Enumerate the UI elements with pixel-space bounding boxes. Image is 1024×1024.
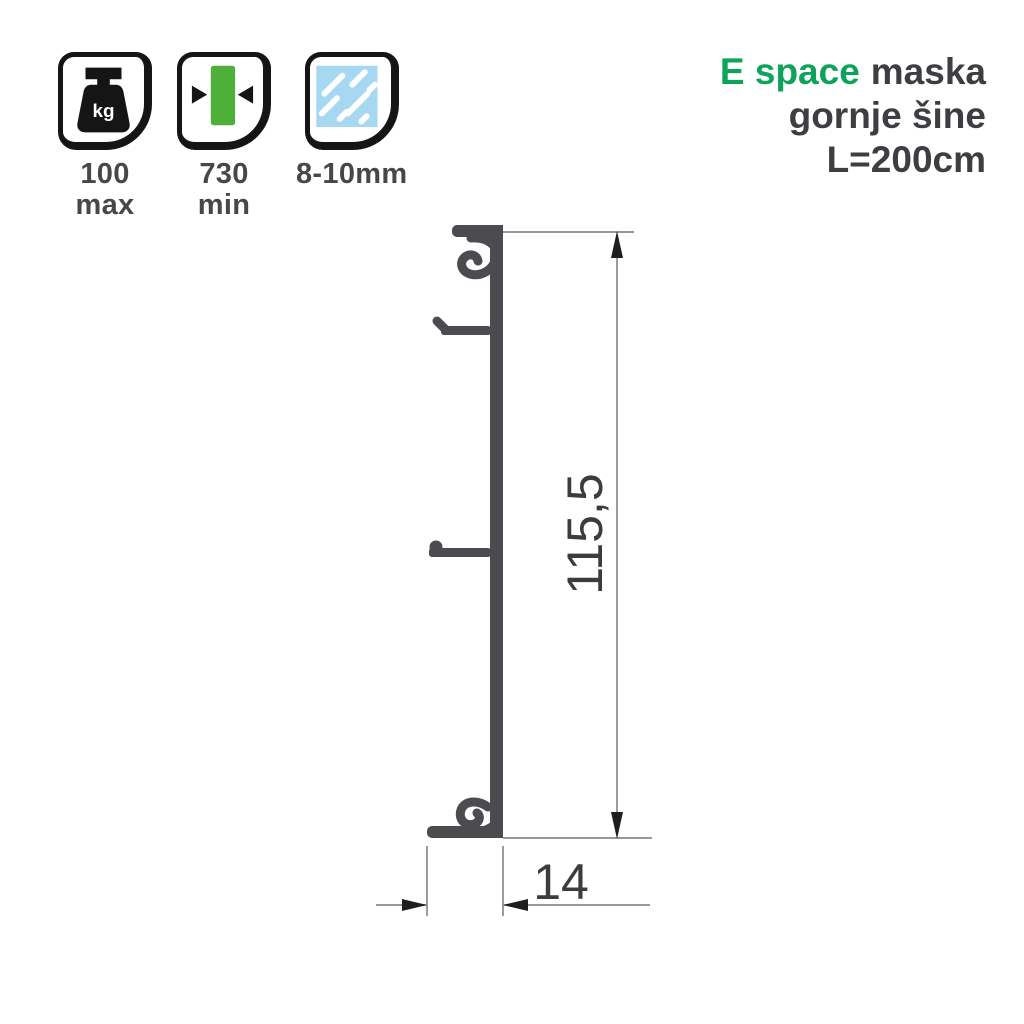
profile-upper-fin-tip [437, 321, 446, 330]
profile-middle-fin-knob [430, 541, 443, 554]
arrow-right-icon [402, 899, 427, 911]
height-dimension: 115,5 [503, 231, 652, 839]
width-dim-value: 14 [533, 854, 589, 910]
profile-cross-section-drawing: 115,5 14 [0, 0, 1024, 1024]
product-spec-page: kg 100 max 730 min [0, 0, 1024, 1024]
aluminium-profile-shape [427, 225, 503, 838]
arrow-up-icon [611, 231, 623, 258]
profile-wall [490, 225, 503, 838]
arrow-down-icon [611, 812, 623, 839]
profile-foot [427, 826, 503, 838]
profile-bottom-hook [460, 802, 488, 825]
height-dim-value: 115,5 [557, 473, 613, 594]
width-dimension: 14 [376, 846, 650, 916]
arrow-left-icon [503, 899, 528, 911]
